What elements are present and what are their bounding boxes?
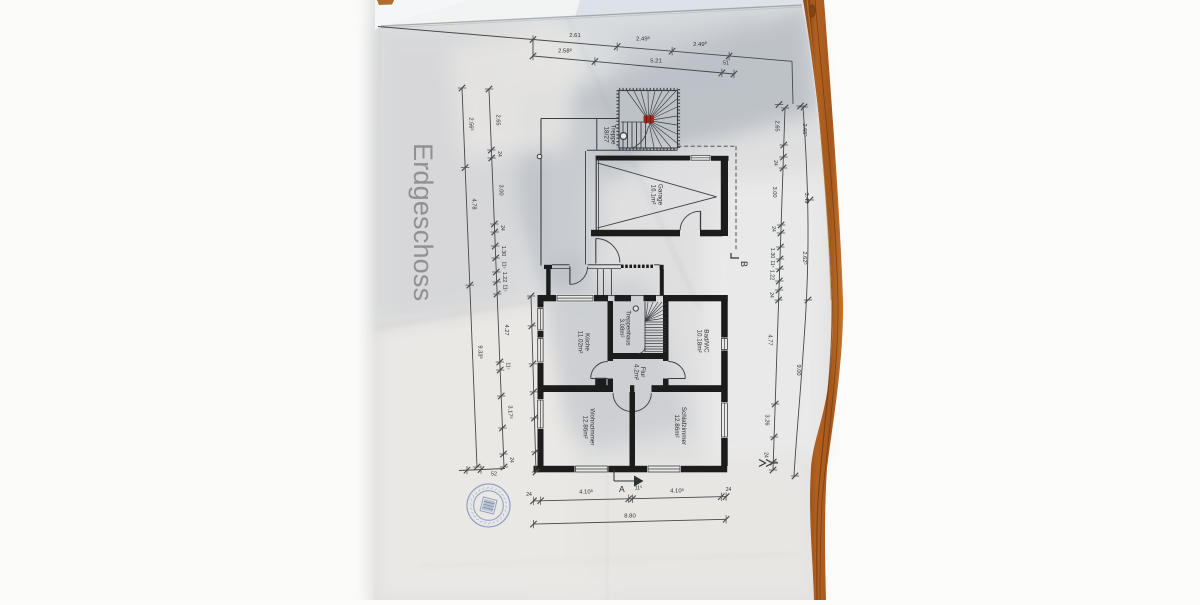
svg-text:11⁵: 11⁵ xyxy=(769,260,775,267)
svg-text:4.78: 4.78 xyxy=(471,198,477,209)
svg-text:24: 24 xyxy=(499,225,505,231)
svg-text:2.61: 2.61 xyxy=(569,33,580,39)
svg-text:Garage: Garage xyxy=(657,184,664,206)
svg-text:11⁵: 11⁵ xyxy=(501,284,507,291)
svg-text:3.08m²: 3.08m² xyxy=(618,319,624,338)
svg-text:3.00: 3.00 xyxy=(498,184,504,195)
svg-text:2.65: 2.65 xyxy=(773,120,779,131)
svg-text:8.80: 8.80 xyxy=(624,514,636,520)
svg-text:2.65: 2.65 xyxy=(495,114,501,125)
svg-text:24: 24 xyxy=(763,452,769,458)
svg-text:1.30: 1.30 xyxy=(500,246,506,257)
svg-text:24: 24 xyxy=(526,492,532,498)
svg-text:1.22: 1.22 xyxy=(501,272,507,283)
svg-text:1.22: 1.22 xyxy=(769,270,775,281)
svg-text:24: 24 xyxy=(768,292,774,298)
svg-text:Treppenhaus: Treppenhaus xyxy=(625,310,631,345)
svg-text:11⁵: 11⁵ xyxy=(635,486,643,492)
svg-text:3.49: 3.49 xyxy=(803,192,809,203)
svg-text:4.2m²: 4.2m² xyxy=(633,364,640,380)
svg-text:Wohnzimmer: Wohnzimmer xyxy=(589,409,596,446)
svg-text:A: A xyxy=(619,484,625,494)
svg-text:24: 24 xyxy=(772,160,778,166)
svg-text:16.1m²: 16.1m² xyxy=(650,185,657,205)
svg-text:11⁵: 11⁵ xyxy=(505,362,511,369)
svg-text:4.77: 4.77 xyxy=(766,334,772,345)
svg-text:Treppe: Treppe xyxy=(610,124,617,144)
svg-text:5.21: 5.21 xyxy=(650,59,661,65)
svg-text:10.18m²: 10.18m² xyxy=(696,329,703,352)
svg-text:12.86m²: 12.86m² xyxy=(673,414,680,437)
svg-text:18/27: 18/27 xyxy=(603,127,610,143)
svg-text:11.02m²: 11.02m² xyxy=(577,331,584,354)
svg-text:24: 24 xyxy=(770,226,776,232)
svg-text:9.00: 9.00 xyxy=(795,364,801,375)
svg-text:52: 52 xyxy=(491,472,497,478)
svg-text:11⁵: 11⁵ xyxy=(501,261,507,268)
svg-text:24: 24 xyxy=(726,487,732,493)
svg-text:3.26: 3.26 xyxy=(764,414,770,425)
svg-text:12.86m²: 12.86m² xyxy=(582,415,589,438)
svg-text:B: B xyxy=(739,261,749,267)
svg-text:Küche: Küche xyxy=(584,333,591,351)
svg-text:51: 51 xyxy=(723,61,729,67)
svg-text:1.30: 1.30 xyxy=(769,248,775,259)
svg-text:Erdgeschoss: Erdgeschoss xyxy=(408,143,438,301)
svg-text:24: 24 xyxy=(508,457,514,463)
svg-text:Schlafzimmer: Schlafzimmer xyxy=(680,407,687,445)
svg-text:3.00: 3.00 xyxy=(771,186,777,197)
svg-text:24: 24 xyxy=(496,151,502,157)
svg-text:4.27: 4.27 xyxy=(503,324,509,335)
svg-text:Bad/WC: Bad/WC xyxy=(703,329,710,353)
